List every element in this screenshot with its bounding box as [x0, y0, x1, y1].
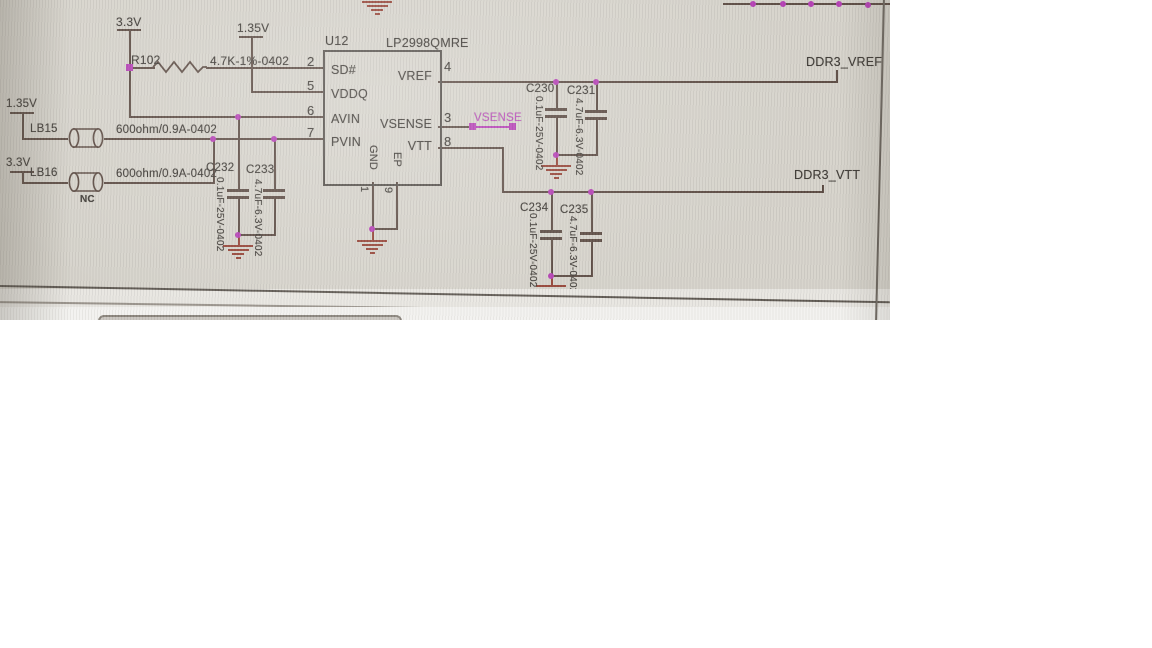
wire	[372, 182, 374, 230]
wire	[836, 70, 838, 83]
ic-pin-name-avin: AVIN	[331, 113, 360, 127]
ic-pin-num-1: 1	[356, 186, 370, 192]
net-label-link	[472, 126, 512, 128]
wire	[22, 138, 68, 140]
wire	[502, 147, 504, 193]
ground-symbol	[370, 252, 375, 254]
capacitor-plate	[585, 117, 607, 120]
power-label-1v35-left: 1.35V	[6, 98, 37, 111]
wire	[591, 191, 593, 232]
ic-pin-num-7: 7	[307, 126, 314, 140]
photo-right-edge	[875, 0, 885, 320]
ground-symbol	[357, 240, 387, 242]
wire	[396, 182, 398, 230]
bead-refdes-lb16: LB16	[30, 167, 58, 180]
capacitor-plate	[540, 237, 562, 240]
cap-value-c234: 0.1uF-25V-0402	[524, 213, 538, 288]
page: 3.3V 1.35V 1.35V 3.3V R102 4.7K-1%-0402 …	[0, 0, 1152, 648]
capacitor-plate	[227, 196, 249, 199]
capacitor-plate	[263, 196, 285, 199]
ic-part-number: LP2998QMRE	[386, 37, 469, 51]
ground-symbol	[236, 257, 241, 259]
wire	[551, 191, 553, 230]
ground-symbol	[536, 285, 566, 287]
power-label-1v35-top: 1.35V	[237, 22, 269, 35]
ground-symbol	[232, 253, 244, 255]
wire	[438, 81, 838, 83]
bead-value-lb16: 600ohm/0.9A-0402	[116, 168, 217, 181]
ground-symbol	[541, 165, 571, 167]
capacitor-plate	[580, 239, 602, 242]
ic-pin-name-sd: SD#	[331, 64, 356, 78]
wire	[129, 116, 325, 118]
ground-symbol	[228, 249, 249, 251]
cap-value-c235: 4.7uF-6.3V-0402	[564, 216, 578, 294]
ground-symbol	[366, 248, 378, 250]
net-label-ddr3-vtt: DDR3_VTT	[794, 169, 860, 183]
power-label-3v3-left: 3.3V	[6, 157, 30, 170]
wire	[438, 126, 472, 128]
resistor-value: 4.7K-1%-0402	[210, 55, 289, 68]
cap-value-c233: 4.7uF-6.3V-0402	[249, 179, 263, 257]
schematic-photo: 3.3V 1.35V 1.35V 3.3V R102 4.7K-1%-0402 …	[0, 0, 890, 320]
cap-refdes-c233: C233	[246, 164, 274, 177]
junction-dot	[836, 1, 842, 7]
junction-dot	[588, 189, 594, 195]
cap-value-c230: 0.1uF-25V-0402	[530, 96, 544, 171]
cap-refdes-c230: C230	[526, 83, 554, 96]
ic-pin-name-vref: VREF	[388, 70, 432, 84]
ic-pin-name-pvin: PVIN	[331, 136, 361, 150]
ic-pin-name-vsense: VSENSE	[372, 118, 432, 132]
wire	[129, 30, 131, 118]
wire	[591, 241, 593, 277]
wire	[238, 199, 240, 236]
ferrite-bead-symbol-lb16	[67, 171, 105, 193]
capacitor-plate	[263, 189, 285, 192]
junction-dot	[780, 1, 786, 7]
net-label-vsense: VSENSE	[474, 112, 522, 125]
wire	[104, 182, 215, 184]
wire	[22, 173, 24, 183]
cap-value-c231: 4.7uF-6.3V-0402	[570, 98, 584, 176]
power-label-3v3-top: 3.3V	[116, 16, 142, 29]
junction-dot	[548, 189, 554, 195]
resistor-refdes: R102	[131, 54, 161, 67]
wire	[551, 239, 553, 277]
junction-dot	[865, 2, 871, 8]
wire	[22, 114, 24, 139]
wire	[596, 81, 598, 110]
ic-pin-num-9: 9	[380, 187, 394, 193]
capacitor-plate	[580, 232, 602, 235]
capacitor-plate	[540, 230, 562, 233]
ic-pin-name-vddq: VDDQ	[331, 88, 368, 102]
ground-symbol	[375, 13, 380, 15]
ground-symbol	[550, 173, 562, 175]
wire	[238, 116, 240, 189]
cap-refdes-c232: C232	[206, 162, 234, 175]
wire	[596, 119, 598, 156]
ic-pin-name-ep: EP	[389, 152, 403, 167]
ic-pin-name-gnd: GND	[365, 145, 379, 170]
wire	[274, 199, 276, 236]
junction-dot	[235, 114, 241, 120]
ground-symbol	[362, 244, 383, 246]
bead-nc-note: NC	[80, 194, 95, 205]
capacitor-plate	[545, 108, 567, 111]
cap-refdes-c231: C231	[567, 85, 595, 98]
ic-pin-num-6: 6	[307, 104, 314, 118]
ground-symbol	[371, 9, 383, 11]
junction-dot	[210, 136, 216, 142]
window-edge	[98, 315, 402, 320]
capacitor-plate	[545, 115, 567, 118]
capacitor-plate	[585, 110, 607, 113]
wire	[556, 81, 558, 108]
bead-refdes-lb15: LB15	[30, 123, 58, 136]
ferrite-bead-symbol-lb15	[67, 127, 105, 149]
ground-symbol	[362, 1, 392, 3]
ic-pin-num-5: 5	[307, 79, 314, 93]
junction-dot	[750, 1, 756, 7]
junction-dot	[271, 136, 277, 142]
ground-symbol	[554, 177, 559, 179]
junction-dot	[548, 273, 554, 279]
capacitor-plate	[227, 189, 249, 192]
wire	[372, 228, 398, 230]
wire	[822, 185, 824, 193]
junction-dot	[235, 232, 241, 238]
ic-pin-num-4: 4	[444, 60, 451, 74]
bead-value-lb15: 600ohm/0.9A-0402	[116, 124, 217, 137]
junction-dot	[553, 152, 559, 158]
wire	[22, 182, 68, 184]
ic-pin-name-vtt: VTT	[398, 140, 432, 154]
wire	[274, 138, 276, 189]
ground-symbol	[546, 169, 567, 171]
ground-symbol	[367, 5, 388, 7]
cap-value-c232: 0.1uF-25V-0402	[211, 177, 225, 252]
net-label-ddr3-vref: DDR3_VREF	[806, 56, 882, 70]
cap-refdes-c235: C235	[560, 204, 588, 217]
ic-pin-num-8: 8	[444, 135, 451, 149]
ic-refdes: U12	[325, 35, 349, 49]
junction-dot	[369, 226, 375, 232]
ic-pin-num-2: 2	[307, 55, 314, 69]
ic-pin-num-3: 3	[444, 111, 451, 125]
junction-dot	[808, 1, 814, 7]
wire	[556, 117, 558, 156]
